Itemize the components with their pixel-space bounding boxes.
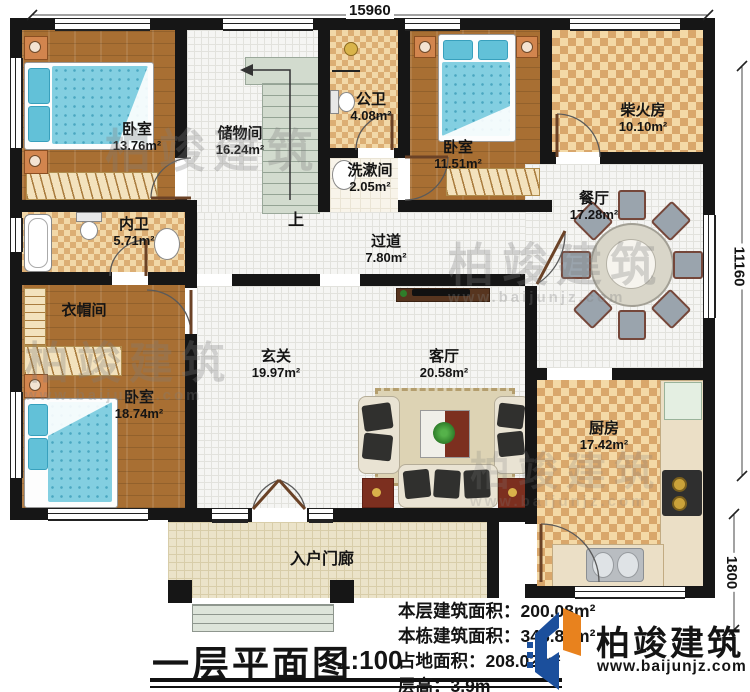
sofa-cushion bbox=[361, 402, 393, 432]
room-label-bedroom1: 卧室 13.76m² bbox=[113, 122, 161, 153]
title-underline-thick bbox=[150, 678, 562, 682]
wall bbox=[398, 200, 552, 212]
room-label-ensuite: 内卫 5.71m² bbox=[113, 217, 154, 248]
tv bbox=[412, 289, 470, 296]
wall bbox=[360, 274, 525, 286]
window bbox=[10, 58, 23, 148]
bed-pillow bbox=[28, 106, 50, 142]
floor-hallway bbox=[197, 212, 525, 274]
wall bbox=[318, 18, 330, 212]
bed-pillow bbox=[478, 40, 508, 60]
wardrobe bbox=[26, 172, 158, 200]
bathtub-basin bbox=[28, 218, 48, 268]
dining-table-center bbox=[606, 239, 656, 289]
shower-head bbox=[344, 42, 358, 56]
wall bbox=[540, 18, 552, 163]
plan-scale: 1:100 bbox=[336, 645, 403, 676]
wall bbox=[525, 286, 537, 524]
window bbox=[309, 508, 333, 523]
room-label-porch: 入户门廊 bbox=[290, 551, 354, 569]
dining-chair bbox=[618, 190, 646, 220]
floor-public-bath bbox=[330, 30, 398, 148]
sofa-cushion bbox=[433, 469, 461, 499]
wall bbox=[540, 152, 556, 164]
wall bbox=[537, 368, 547, 380]
stairs-up-label: 上 bbox=[288, 212, 304, 230]
window bbox=[405, 18, 460, 31]
stove-burner bbox=[672, 477, 687, 492]
dining-chair bbox=[561, 251, 591, 279]
side-table-decor bbox=[508, 488, 517, 497]
toilet-bowl bbox=[80, 221, 98, 240]
nightstand bbox=[24, 374, 48, 398]
porch-pillar bbox=[168, 580, 192, 603]
window bbox=[48, 508, 148, 521]
window bbox=[223, 18, 313, 31]
wall bbox=[537, 586, 575, 598]
dimension-right: 11160 bbox=[731, 243, 748, 289]
floor-plan-canvas: 卧室 13.76m² 储物间 16.24m² 公卫 4.08m² 洗漱间 2.0… bbox=[0, 0, 750, 692]
logo-icon bbox=[527, 602, 591, 690]
stat-floor-height: 层高：3.9m bbox=[398, 673, 490, 692]
dining-chair bbox=[673, 251, 703, 279]
room-label-living: 客厅 20.58m² bbox=[420, 349, 468, 380]
nightstand bbox=[414, 36, 436, 58]
room-label-kitchen: 厨房 17.42m² bbox=[580, 421, 628, 452]
plant bbox=[433, 422, 455, 444]
wall bbox=[330, 148, 358, 158]
room-label-storage: 储物间 16.24m² bbox=[216, 126, 264, 157]
room-label-firewood: 柴火房 10.10m² bbox=[619, 103, 667, 134]
room-label-public-bath: 公卫 4.08m² bbox=[350, 92, 391, 123]
window bbox=[212, 508, 248, 523]
nightstand bbox=[516, 36, 538, 58]
window bbox=[55, 18, 150, 31]
fridge bbox=[664, 382, 702, 420]
window bbox=[10, 392, 23, 478]
bed-pillow bbox=[28, 68, 50, 104]
wall bbox=[10, 200, 197, 212]
bed-pillow bbox=[443, 40, 473, 60]
sofa-cushion bbox=[463, 469, 490, 498]
room-label-hallway: 过道 7.80m² bbox=[365, 234, 406, 265]
room-label-cloakroom: 衣帽间 bbox=[61, 303, 106, 320]
room-label-dining: 餐厅 17.28m² bbox=[570, 191, 618, 222]
nightstand bbox=[24, 36, 48, 60]
stove-burner bbox=[672, 496, 687, 511]
sofa-cushion bbox=[497, 403, 526, 430]
bed-pillow bbox=[28, 438, 48, 470]
dimension-porch: 1800 bbox=[723, 553, 740, 592]
wall bbox=[307, 508, 525, 522]
porch-steps bbox=[192, 604, 334, 632]
sink-bowl bbox=[592, 552, 614, 578]
room-label-foyer: 玄关 19.97m² bbox=[252, 349, 300, 380]
sofa-cushion bbox=[497, 431, 525, 458]
room-label-washroom: 洗漱间 2.05m² bbox=[347, 163, 392, 194]
window bbox=[570, 18, 680, 31]
room-label-bedroom2: 卧室 11.51m² bbox=[434, 140, 482, 171]
dimension-top: 15960 bbox=[346, 2, 394, 19]
wall bbox=[232, 274, 320, 286]
side-table-decor bbox=[372, 488, 381, 497]
wall bbox=[175, 18, 187, 158]
wardrobe bbox=[446, 168, 540, 196]
wall bbox=[398, 18, 410, 155]
porch-pillar bbox=[168, 508, 196, 522]
sink bbox=[154, 228, 180, 260]
window bbox=[703, 215, 716, 318]
wall bbox=[525, 584, 537, 598]
sink-bowl bbox=[617, 552, 639, 578]
sofa-cushion bbox=[403, 469, 432, 500]
wall bbox=[148, 272, 197, 285]
wall bbox=[685, 586, 715, 598]
nightstand bbox=[24, 150, 48, 174]
wall bbox=[612, 368, 703, 380]
title-underline-thin bbox=[150, 686, 562, 688]
closet-hanger-rack bbox=[24, 346, 122, 376]
logo-url: www.baijunjz.com bbox=[597, 658, 747, 676]
window bbox=[10, 218, 23, 252]
wall bbox=[318, 200, 330, 212]
plant-small bbox=[400, 290, 407, 297]
stair-landing bbox=[245, 57, 320, 85]
wall bbox=[10, 272, 112, 285]
porch-pillar bbox=[330, 580, 354, 603]
room-label-bedroom3: 卧室 18.74m² bbox=[115, 390, 163, 421]
stair-run bbox=[262, 83, 320, 214]
wall bbox=[487, 522, 499, 598]
dining-chair bbox=[618, 310, 646, 340]
bed-pillow bbox=[28, 404, 48, 436]
wall bbox=[185, 334, 197, 508]
closet-shelf bbox=[24, 288, 46, 346]
sofa-cushion bbox=[362, 433, 394, 462]
towel-bar bbox=[332, 70, 360, 72]
wall bbox=[600, 152, 715, 164]
